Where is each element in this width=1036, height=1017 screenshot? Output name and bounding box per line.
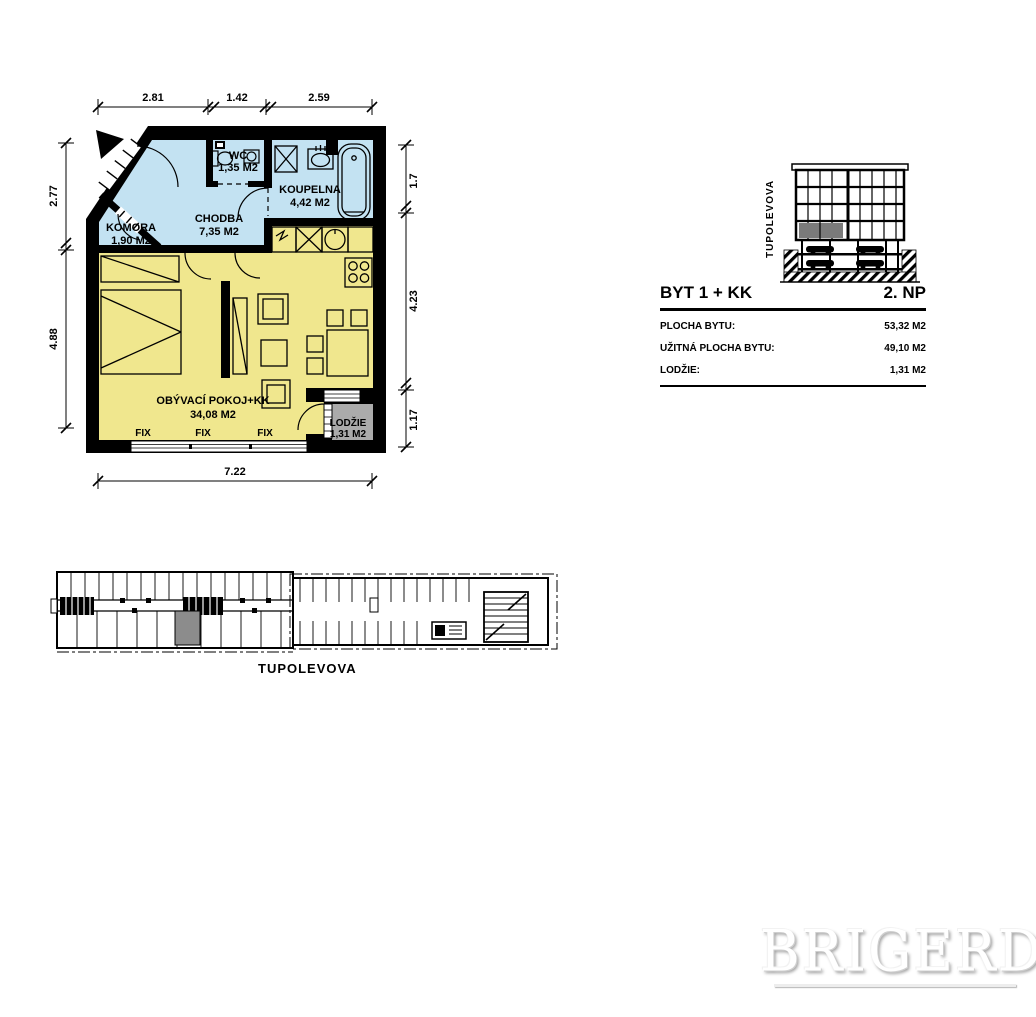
unit-info-table: BYT 1 + KK 2. NP PLOCHA BYTU: 53,32 M2 U… bbox=[660, 283, 926, 387]
row-value: 1,31 M2 bbox=[890, 363, 926, 379]
dim-top-2: 1.42 bbox=[226, 92, 247, 104]
window-label-fix-2: FIX bbox=[195, 428, 211, 439]
room-label-obyvaci-pokoj: OBÝVACÍ POKOJ+KK bbox=[156, 394, 269, 407]
room-area-wc: 1,35 M2 bbox=[218, 162, 258, 174]
table-row: UŽITNÁ PLOCHA BYTU: 49,10 M2 bbox=[660, 335, 926, 357]
room-label-lodzie: LODŽIE bbox=[330, 416, 367, 429]
room-area-obyvaci-pokoj: 34,08 M2 bbox=[190, 409, 236, 421]
room-label-chodba: CHODBA bbox=[195, 213, 243, 225]
dim-top-3: 2.59 bbox=[308, 92, 329, 104]
dim-right-2: 4.23 bbox=[408, 290, 420, 311]
row-value: 53,32 M2 bbox=[884, 319, 926, 335]
room-label-komora: KOMORA bbox=[106, 222, 156, 234]
window-label-fix-3: FIX bbox=[257, 428, 273, 439]
wall-vent bbox=[217, 143, 223, 147]
street-label-section: TUPOLEVOVA bbox=[765, 180, 776, 258]
window-label-fix-1: FIX bbox=[135, 428, 151, 439]
table-row: LODŽIE: 1,31 M2 bbox=[660, 357, 926, 379]
street-label-siteplan: TUPOLEVOVA bbox=[258, 661, 357, 676]
row-label: UŽITNÁ PLOCHA BYTU: bbox=[660, 341, 775, 357]
room-label-koupelna: KOUPELNA bbox=[279, 184, 341, 196]
dim-top-1: 2.81 bbox=[142, 92, 163, 104]
site-highlight-unit bbox=[175, 611, 200, 645]
dim-right-3: 1.17 bbox=[408, 409, 420, 430]
table-row: PLOCHA BYTU: 53,32 M2 bbox=[660, 313, 926, 335]
loggia-symbol: 2L bbox=[331, 442, 342, 452]
car-icon bbox=[806, 246, 884, 269]
row-value: 49,10 M2 bbox=[884, 341, 926, 357]
dim-left-1: 2.77 bbox=[48, 185, 60, 206]
dim-left-2: 4.88 bbox=[48, 328, 60, 349]
garage-ramp bbox=[484, 592, 528, 642]
unit-name: BYT 1 + KK bbox=[660, 283, 752, 303]
watermark-text: BRIGERD bbox=[760, 918, 1030, 985]
building-section: TUPOLEVOVA bbox=[765, 164, 920, 282]
drawing-sheet: KOMORA 1,90 M2 CHODBA 7,35 M2 WC 1,35 M2… bbox=[0, 0, 1036, 1017]
room-area-lodzie: 1,31 M2 bbox=[330, 429, 367, 440]
room-area-komora: 1,90 M2 bbox=[111, 235, 151, 247]
room-label-wc: WC bbox=[229, 150, 247, 162]
section-highlight-unit bbox=[799, 223, 843, 238]
site-plan bbox=[51, 572, 557, 652]
dim-bottom-1: 7.22 bbox=[224, 466, 245, 478]
row-label: PLOCHA BYTU: bbox=[660, 319, 735, 335]
row-label: LODŽIE: bbox=[660, 363, 700, 379]
room-area-chodba: 7,35 M2 bbox=[199, 226, 239, 238]
plan-drawing: KOMORA 1,90 M2 CHODBA 7,35 M2 WC 1,35 M2… bbox=[0, 0, 1036, 1017]
garage-tech-room bbox=[432, 622, 466, 639]
watermark-underline bbox=[774, 984, 1016, 987]
room-area-koupelna: 4,42 M2 bbox=[290, 197, 330, 209]
unit-floor: 2. NP bbox=[883, 283, 926, 303]
floor-plan: KOMORA 1,90 M2 CHODBA 7,35 M2 WC 1,35 M2… bbox=[48, 92, 420, 489]
watermark: BRIGERD bbox=[770, 922, 1020, 987]
dim-right-1: 1.7 bbox=[408, 173, 420, 188]
